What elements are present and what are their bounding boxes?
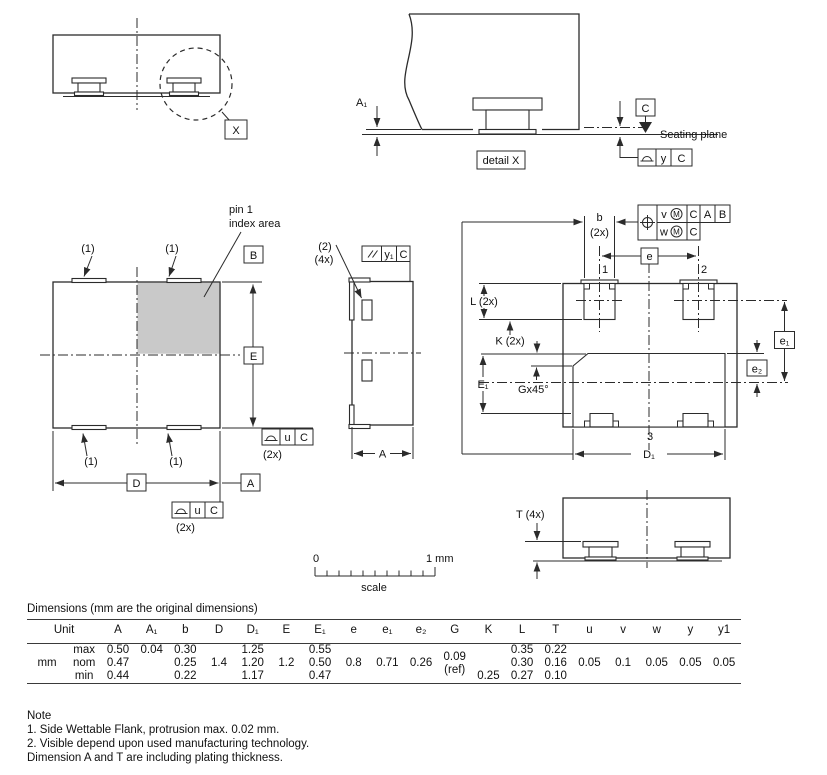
m-modifier-label: M: [673, 210, 680, 219]
tolerance-datum: B: [719, 209, 726, 221]
row-label: min: [67, 670, 101, 684]
col-header: G: [438, 620, 472, 644]
col-header: e₁: [371, 620, 405, 644]
pin1-note-line2: index area: [229, 218, 281, 230]
detail-x-caption: detail X: [483, 155, 520, 167]
value-cell: 0.22: [539, 644, 573, 658]
col-header: e₂: [404, 620, 438, 644]
value-cell: 0.26: [404, 644, 438, 684]
value-cell: 0.30: [169, 644, 203, 658]
package-side-view: X: [53, 18, 247, 139]
tolerance-datum: C: [400, 249, 408, 261]
value-cell: 0.30: [505, 657, 539, 670]
value-cell: 0.8: [337, 644, 371, 684]
value-cell: 0.47: [303, 670, 337, 684]
datum-c-label: C: [642, 103, 650, 115]
value-cell: 0.35: [505, 644, 539, 658]
tolerance-frame-u-right: u C (2x): [262, 429, 313, 461]
bottom-view: b (2x) v M C A B w M C: [462, 205, 795, 461]
t-side-view: T (4x): [516, 490, 730, 579]
notes-heading: Note: [27, 709, 309, 723]
datum-b-label: B: [250, 250, 257, 262]
detail-ref-label: X: [232, 125, 240, 137]
g-ref: (ref): [438, 664, 472, 677]
tolerance-qty: (2x): [263, 449, 282, 461]
dimension-table-section: Dimensions (mm are the original dimensio…: [27, 603, 741, 684]
col-header: y: [674, 620, 708, 644]
detail-circle: [160, 48, 232, 120]
dim-t-label: T (4x): [516, 509, 545, 521]
col-header: A₁: [135, 620, 169, 644]
value-cell: 0.44: [101, 670, 135, 684]
value-cell: 0.50: [303, 657, 337, 670]
tolerance-value: v: [661, 209, 667, 221]
pin1-index-area: [138, 283, 220, 354]
col-header: Unit: [27, 620, 101, 644]
scale-bar: 0 1 mm scale: [313, 553, 454, 594]
col-header: w: [640, 620, 674, 644]
seating-plane-label: Seating plane: [660, 129, 727, 141]
tolerance-value: u: [284, 432, 290, 444]
tolerance-value: u: [194, 505, 200, 517]
position-tolerance-frame: v M C A B w M C: [638, 205, 730, 240]
parallelism-frame: y₁ C: [362, 246, 410, 262]
qty-mark: (1): [169, 456, 182, 468]
scale-start: 0: [313, 553, 319, 565]
table-title: Dimensions (mm are the original dimensio…: [27, 603, 741, 619]
tolerance-frame-u-bottom: u C (2x): [172, 502, 223, 534]
qty-mark: (1): [165, 243, 178, 255]
col-header: D₁: [236, 620, 270, 644]
qty-mark: (1): [81, 243, 94, 255]
unit-cell: mm: [27, 644, 67, 684]
tolerance-datum: C: [690, 209, 698, 221]
dim-d-label: D: [133, 478, 141, 490]
break-line: [405, 14, 422, 130]
value-cell: 0.71: [371, 644, 405, 684]
note-line: 1. Side Wettable Flank, protrusion max. …: [27, 723, 309, 737]
note-line: 2. Visible depend upon used manufacturin…: [27, 737, 309, 751]
tolerance-datum: A: [704, 209, 712, 221]
chamfer-label: Gx45°: [518, 384, 549, 396]
dim-e1-body-label: E₁: [477, 379, 488, 391]
value-cell: [135, 657, 169, 670]
tolerance-frame-y: y C: [638, 149, 692, 166]
drawing-canvas: X A₁ C Seating plane y C detail X: [0, 0, 827, 602]
col-header: E: [270, 620, 304, 644]
value-cell: 1.17: [236, 670, 270, 684]
value-cell: 0.22: [169, 670, 203, 684]
row-label: max: [67, 644, 101, 658]
note-line: Dimension A and T are including plating …: [27, 751, 309, 765]
value-cell: 0.10: [539, 670, 573, 684]
value-cell: 1.4: [202, 644, 236, 684]
front-view: (2) (4x) y₁ C A: [315, 241, 421, 461]
value-cell: 0.27: [505, 670, 539, 684]
tolerance-datum: C: [210, 505, 218, 517]
dim-b-label: b: [596, 212, 602, 224]
scale-caption: scale: [361, 582, 387, 594]
tolerance-datum: C: [300, 432, 308, 444]
dim-k-label: K (2x): [495, 336, 524, 348]
top-view: (1) (1) (1) (1) pin 1 index area B E u C…: [40, 204, 313, 534]
value-cell: 0.16: [539, 657, 573, 670]
dim-b-qty: (2x): [590, 227, 609, 239]
value-cell: 0.05: [674, 644, 708, 684]
wettable-flank-window: [362, 300, 372, 320]
value-cell: 1.20: [236, 657, 270, 670]
value-cell-g: 0.09 (ref): [438, 644, 472, 684]
value-cell: 0.05: [573, 644, 607, 684]
col-header: y1: [707, 620, 741, 644]
value-cell: 0.55: [303, 644, 337, 658]
value-cell: 0.04: [135, 644, 169, 658]
qty-mark: (1): [84, 456, 97, 468]
note-qty: (4x): [315, 254, 334, 266]
col-header: E₁: [303, 620, 337, 644]
package-outline-drawing: X A₁ C Seating plane y C detail X: [0, 0, 827, 775]
col-header: u: [573, 620, 607, 644]
dim-a1-label: A₁: [356, 97, 367, 109]
tolerance-qty: (2x): [176, 522, 195, 534]
pin1-note-line1: pin 1: [229, 204, 253, 216]
value-cell: 0.1: [606, 644, 640, 684]
dim-e2-label: e₂: [752, 364, 762, 376]
table-header-row: Unit A A₁ b D D₁ E E₁ e e₁ e₂ G K L T u …: [27, 620, 741, 644]
pin-number-2: 2: [701, 264, 707, 276]
dim-d1-label: D₁: [643, 449, 655, 461]
col-header: K: [472, 620, 506, 644]
row-label: nom: [67, 657, 101, 670]
value-cell: 0.47: [101, 657, 135, 670]
notes-section: Note 1. Side Wettable Flank, protrusion …: [27, 709, 309, 765]
value-cell: 0.05: [707, 644, 741, 684]
value-cell: 0.25: [472, 670, 506, 684]
value-cell: 0.50: [101, 644, 135, 658]
col-header: v: [606, 620, 640, 644]
datum-a-label: A: [247, 478, 255, 490]
g-value: 0.09: [438, 651, 472, 664]
wettable-flank-window: [362, 360, 372, 381]
value-cell: [472, 657, 506, 670]
col-header: T: [539, 620, 573, 644]
dim-e-label: E: [250, 351, 257, 363]
value-cell: [135, 670, 169, 684]
m-modifier-label: M: [673, 228, 680, 237]
scale-end: 1 mm: [426, 553, 454, 565]
tolerance-value: w: [659, 227, 668, 239]
dim-e-label: e: [646, 251, 652, 263]
tolerance-datum: C: [690, 227, 698, 239]
col-header: D: [202, 620, 236, 644]
value-cell: 1.25: [236, 644, 270, 658]
dim-l-label: L (2x): [470, 296, 498, 308]
pin-number-1: 1: [602, 264, 608, 276]
dim-e1-label: e₁: [780, 336, 790, 348]
detail-x-view: A₁ C Seating plane y C detail X: [356, 14, 727, 169]
note-ref: (2): [318, 241, 331, 253]
tolerance-datum: C: [678, 153, 686, 165]
dim-a-label: A: [379, 449, 387, 461]
col-header: e: [337, 620, 371, 644]
col-header: L: [505, 620, 539, 644]
tolerance-value: y: [661, 153, 667, 165]
value-cell: 0.05: [640, 644, 674, 684]
pin-number-3: 3: [647, 431, 653, 443]
col-header: A: [101, 620, 135, 644]
col-header: b: [169, 620, 203, 644]
tolerance-value: y₁: [384, 249, 394, 261]
value-cell: 1.2: [270, 644, 304, 684]
value-cell: [472, 644, 506, 658]
table-row-max: mm max 0.50 0.04 0.30 1.4 1.25 1.2 0.55 …: [27, 644, 741, 658]
dimension-table: Unit A A₁ b D D₁ E E₁ e e₁ e₂ G K L T u …: [27, 619, 741, 684]
value-cell: 0.25: [169, 657, 203, 670]
